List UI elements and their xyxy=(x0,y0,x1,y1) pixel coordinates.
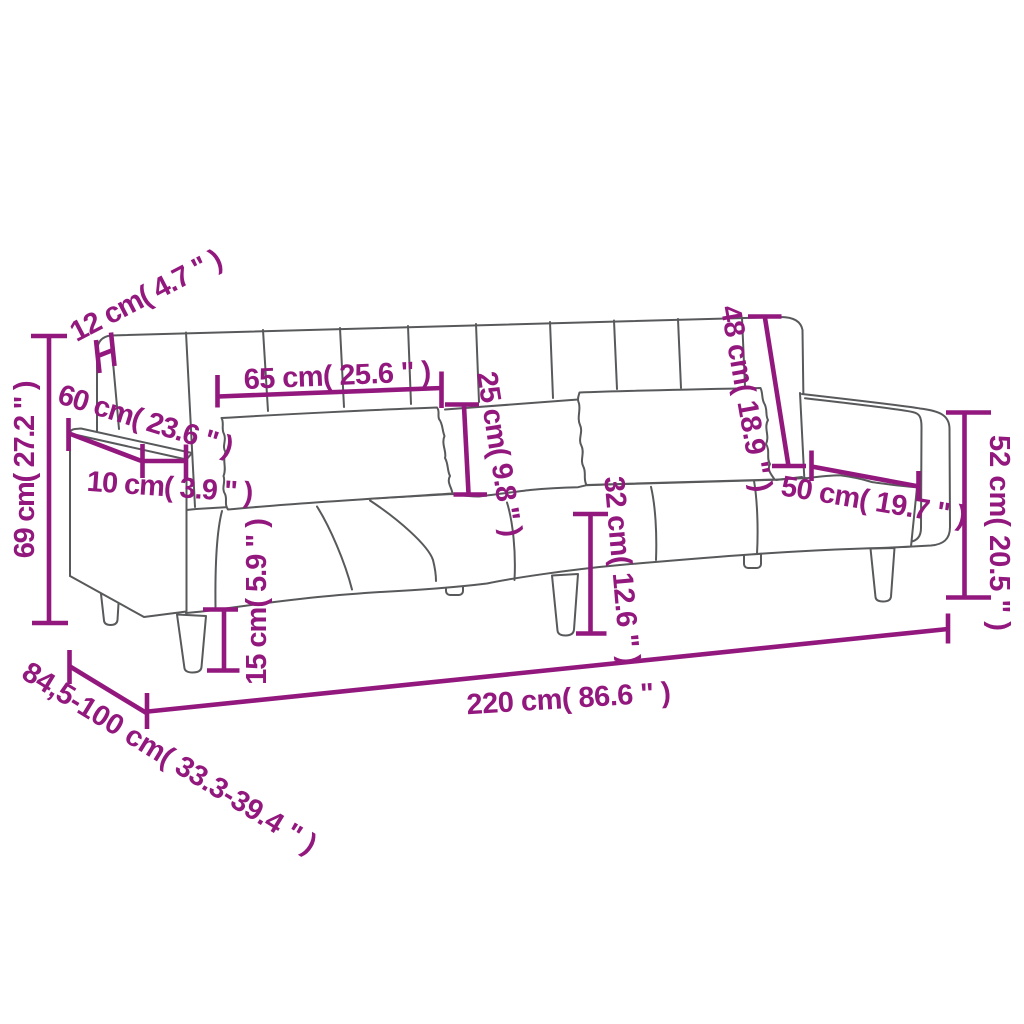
svg-text:15 cm( 5.9 " ): 15 cm( 5.9 " ) xyxy=(241,519,273,685)
svg-text:220 cm( 86.6 " ): 220 cm( 86.6 " ) xyxy=(466,677,672,721)
svg-text:52 cm( 20.5 " ): 52 cm( 20.5 " ) xyxy=(983,435,1015,631)
svg-text:84,5-100 cm( 33.3-39.4 " ): 84,5-100 cm( 33.3-39.4 " ) xyxy=(16,656,322,860)
svg-text:69 cm( 27.2 " ): 69 cm( 27.2 " ) xyxy=(9,381,41,558)
